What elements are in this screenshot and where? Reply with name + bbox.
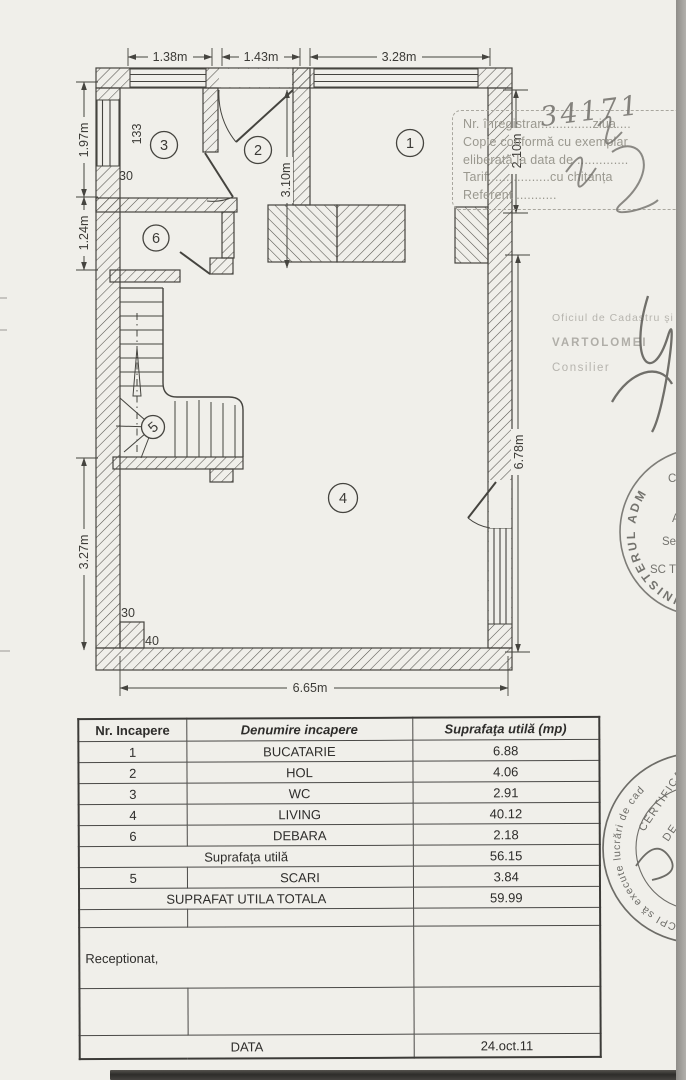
window-room3 [130, 68, 206, 88]
stamp-line: eliberată la data de .............. [463, 152, 686, 170]
area-table: Nr. Incapere Denumire incapere Suprafaţa… [77, 716, 601, 1060]
table-cell: DATA [80, 1034, 414, 1059]
table-cell [413, 925, 600, 987]
room3-door [205, 153, 233, 201]
table-cell: HOL [186, 761, 412, 783]
room-circle-1: 1 [397, 130, 424, 157]
dim-label: 3.10m [278, 157, 293, 203]
living-room-door [468, 480, 511, 528]
table-cell: SUPRAFAT UTILA TOTALA [79, 887, 413, 909]
table-cell: 2 [78, 762, 186, 783]
svg-text:6.65m: 6.65m [293, 681, 328, 695]
table-row [79, 986, 600, 1035]
table-row: 6DEBARA2.18 [79, 823, 600, 846]
header-nr: Nr. Incapere [78, 719, 186, 742]
room-number: 6 [152, 231, 160, 247]
table-cell [79, 909, 187, 927]
window-left-wall [96, 100, 120, 166]
stamp-line: Tarif.................cu chitanța [463, 169, 686, 187]
room-number: 2 [254, 143, 262, 159]
svg-text:1.38m: 1.38m [153, 50, 188, 64]
entrance-door [219, 69, 293, 142]
table-row: Suprafaţa utilă56.15 [79, 844, 600, 867]
chevron-wall-blocks [268, 205, 488, 263]
room-number: 3 [160, 138, 168, 154]
table-cell: 1 [78, 741, 186, 762]
stair-treads-upper [120, 302, 163, 386]
official-title: Consilier [552, 362, 686, 374]
scanned-floor-plan-document: { "floor_plan": { "room_numbers": ["1", … [0, 0, 686, 1080]
table-cell [187, 908, 413, 927]
svg-text:1.43m: 1.43m [244, 50, 279, 64]
room-circle-5: 5 [142, 416, 165, 439]
table-cell: 3 [79, 783, 187, 804]
interior-walls [96, 68, 310, 482]
table-cell: 4.06 [412, 760, 599, 782]
dim-label: 3.27m [76, 529, 91, 575]
room6-door [180, 252, 210, 274]
office-name: Oficiul de Cadastru şi [552, 312, 686, 324]
wall-below-room6 [110, 270, 180, 282]
official-name: VARTOLOMEI [552, 337, 686, 349]
table-row: 3WC2.91 [79, 781, 600, 804]
room-circle-3: 3 [151, 132, 178, 159]
header-denumire: Denumire incapere [186, 718, 412, 741]
area-table-body: 1BUCATARIE6.882HOL4.063WC2.914LIVING40.1… [78, 739, 600, 1059]
dim-label: 1.43m [239, 49, 284, 64]
room6-door-jamb [210, 258, 233, 274]
table-row [79, 907, 600, 927]
table-cell: LIVING [187, 803, 413, 825]
table-cell: 56.15 [413, 844, 600, 866]
room-number: 1 [406, 136, 414, 152]
wall-room2-room1 [293, 68, 310, 205]
wall-mark: 133 [130, 124, 144, 145]
wall-below-room3 [96, 198, 237, 212]
stair-treads-lower [175, 400, 235, 457]
wall-room3-room2 [203, 88, 218, 152]
room-circle-4: 4 [329, 484, 358, 513]
wall-room6-right [222, 212, 234, 258]
svg-text:6.78m: 6.78m [512, 435, 526, 470]
table-cell: 5 [79, 867, 187, 888]
area-table-container: Nr. Incapere Denumire incapere Suprafaţa… [77, 716, 601, 1060]
table-cell: Suprafaţa utilă [79, 845, 413, 867]
stair-pillar [210, 469, 233, 482]
room-circle-6: 6 [143, 225, 169, 251]
svg-text:3.28m: 3.28m [382, 50, 417, 64]
svg-text:1.24m: 1.24m [77, 216, 91, 251]
scan-edge-marks [0, 298, 10, 651]
room-number: 4 [339, 491, 347, 507]
table-cell [413, 907, 600, 926]
table-row: DATA24.oct.11 [80, 1033, 601, 1059]
wall-mark: 30 [121, 606, 135, 620]
table-cell: 4 [79, 804, 187, 825]
staircase [116, 288, 243, 458]
table-cell: DEBARA [187, 824, 413, 846]
svg-text:3.27m: 3.27m [77, 535, 91, 570]
table-cell: BUCATARIE [186, 740, 412, 762]
bottom-left-wall-step [120, 622, 144, 648]
scan-right-edge [676, 0, 686, 1080]
table-row: 5SCARI3.84 [79, 865, 600, 888]
table-cell: 40.12 [413, 802, 600, 824]
table-cell [79, 988, 187, 1035]
dim-label: 6.65m [287, 680, 334, 695]
table-row: 4LIVING40.12 [79, 802, 600, 825]
table-cell [187, 987, 413, 1035]
table-cell: Receptionat, [79, 926, 413, 988]
table-cell: 2.91 [413, 781, 600, 803]
scan-bottom-bar [110, 1070, 686, 1080]
table-cell: 2.18 [413, 823, 600, 845]
wall-mark: 40 [145, 634, 159, 648]
dim-label: 1.24m [76, 210, 91, 256]
table-cell: 6.88 [412, 739, 599, 761]
table-cell: 59.99 [413, 886, 600, 908]
dim-label: 6.78m [511, 429, 526, 475]
svg-text:1.97m: 1.97m [77, 123, 91, 158]
table-cell: 3.84 [413, 865, 600, 887]
table-cell [413, 986, 600, 1034]
table-row: SUPRAFAT UTILA TOTALA59.99 [79, 886, 600, 909]
svg-text:3.10m: 3.10m [279, 163, 293, 198]
room-circle-2: 2 [245, 137, 272, 164]
header-suprafata: Suprafaţa utilă (mp) [412, 717, 599, 740]
wall-mark: 30 [119, 169, 133, 183]
table-cell: 24.oct.11 [414, 1033, 601, 1057]
cadastre-office-block: Oficiul de Cadastru şi VARTOLOMEI Consil… [552, 312, 686, 374]
stair-bottom-wall [113, 457, 243, 469]
table-cell: SCARI [187, 866, 413, 888]
table-row: 2HOL4.06 [78, 760, 599, 783]
table-row: Receptionat, [79, 925, 600, 988]
table-row: 1BUCATARIE6.88 [78, 739, 599, 762]
dim-label: 1.38m [148, 49, 193, 64]
window-room1 [314, 68, 478, 88]
dim-label: 3.28m [377, 49, 422, 64]
stamp-line: Referent ........... [463, 187, 686, 205]
table-cell: WC [187, 782, 413, 804]
window-right-wall [488, 528, 512, 624]
dim-label: 1.97m [76, 117, 91, 163]
table-cell: 6 [79, 825, 187, 846]
stamp-line: Copie conformă cu exemplar [463, 134, 686, 152]
table-header-row: Nr. Incapere Denumire incapere Suprafaţa… [78, 717, 599, 742]
